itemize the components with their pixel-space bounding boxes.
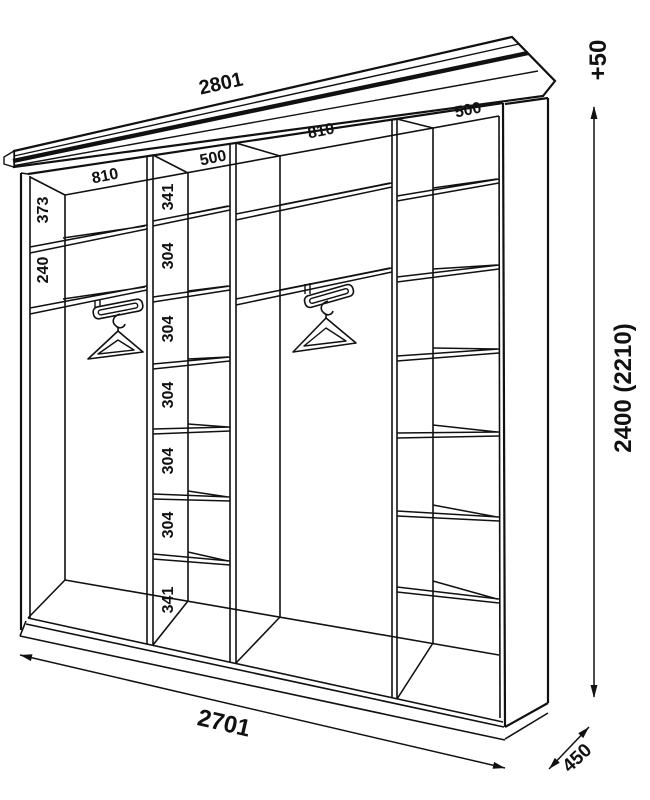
left-height-1: 373 <box>35 197 52 224</box>
column-height-5: 304 <box>160 448 177 475</box>
hanger-rod-left <box>92 298 143 319</box>
column-height-2: 304 <box>160 243 177 270</box>
dimension-height-line <box>591 106 598 698</box>
partition-3 <box>392 119 433 699</box>
diagram-canvas: 2801 +50 2400 (2210) 2701 450 810 500 81… <box>0 0 650 800</box>
hanger-middle <box>293 301 356 352</box>
column-height-3: 304 <box>160 316 177 343</box>
shelf-column-height-labels: 341 304 304 304 304 304 341 <box>160 184 177 614</box>
dim-crown-extra: +50 <box>585 40 612 81</box>
hanger-left <box>88 314 143 359</box>
section-width-4: 500 <box>453 100 483 122</box>
carcass-outline <box>21 98 548 739</box>
hanger-hook-icon <box>113 314 125 331</box>
dim-total-height: 2400 (2210) <box>610 323 637 452</box>
wardrobe-dimension-diagram: 2801 +50 2400 (2210) 2701 450 810 500 81… <box>0 0 650 800</box>
dim-top-width: 2801 <box>197 68 245 99</box>
column-height-4: 304 <box>160 382 177 409</box>
dim-depth: 450 <box>559 740 597 777</box>
section-width-3: 810 <box>306 121 336 143</box>
crown-left-return <box>4 151 14 167</box>
column-height-7: 341 <box>160 587 177 614</box>
section-width-1: 810 <box>90 166 120 188</box>
dim-bottom-width: 2701 <box>195 704 253 742</box>
right-column-shelves <box>397 179 499 603</box>
column-height-6: 304 <box>160 512 177 539</box>
left-height-2: 240 <box>35 257 52 284</box>
partition-2 <box>230 143 280 663</box>
hanger-rod-middle <box>303 283 354 309</box>
left-section-height-labels: 373 240 <box>35 197 52 284</box>
second-section-shelves <box>236 183 392 305</box>
column-height-1: 341 <box>160 184 177 211</box>
